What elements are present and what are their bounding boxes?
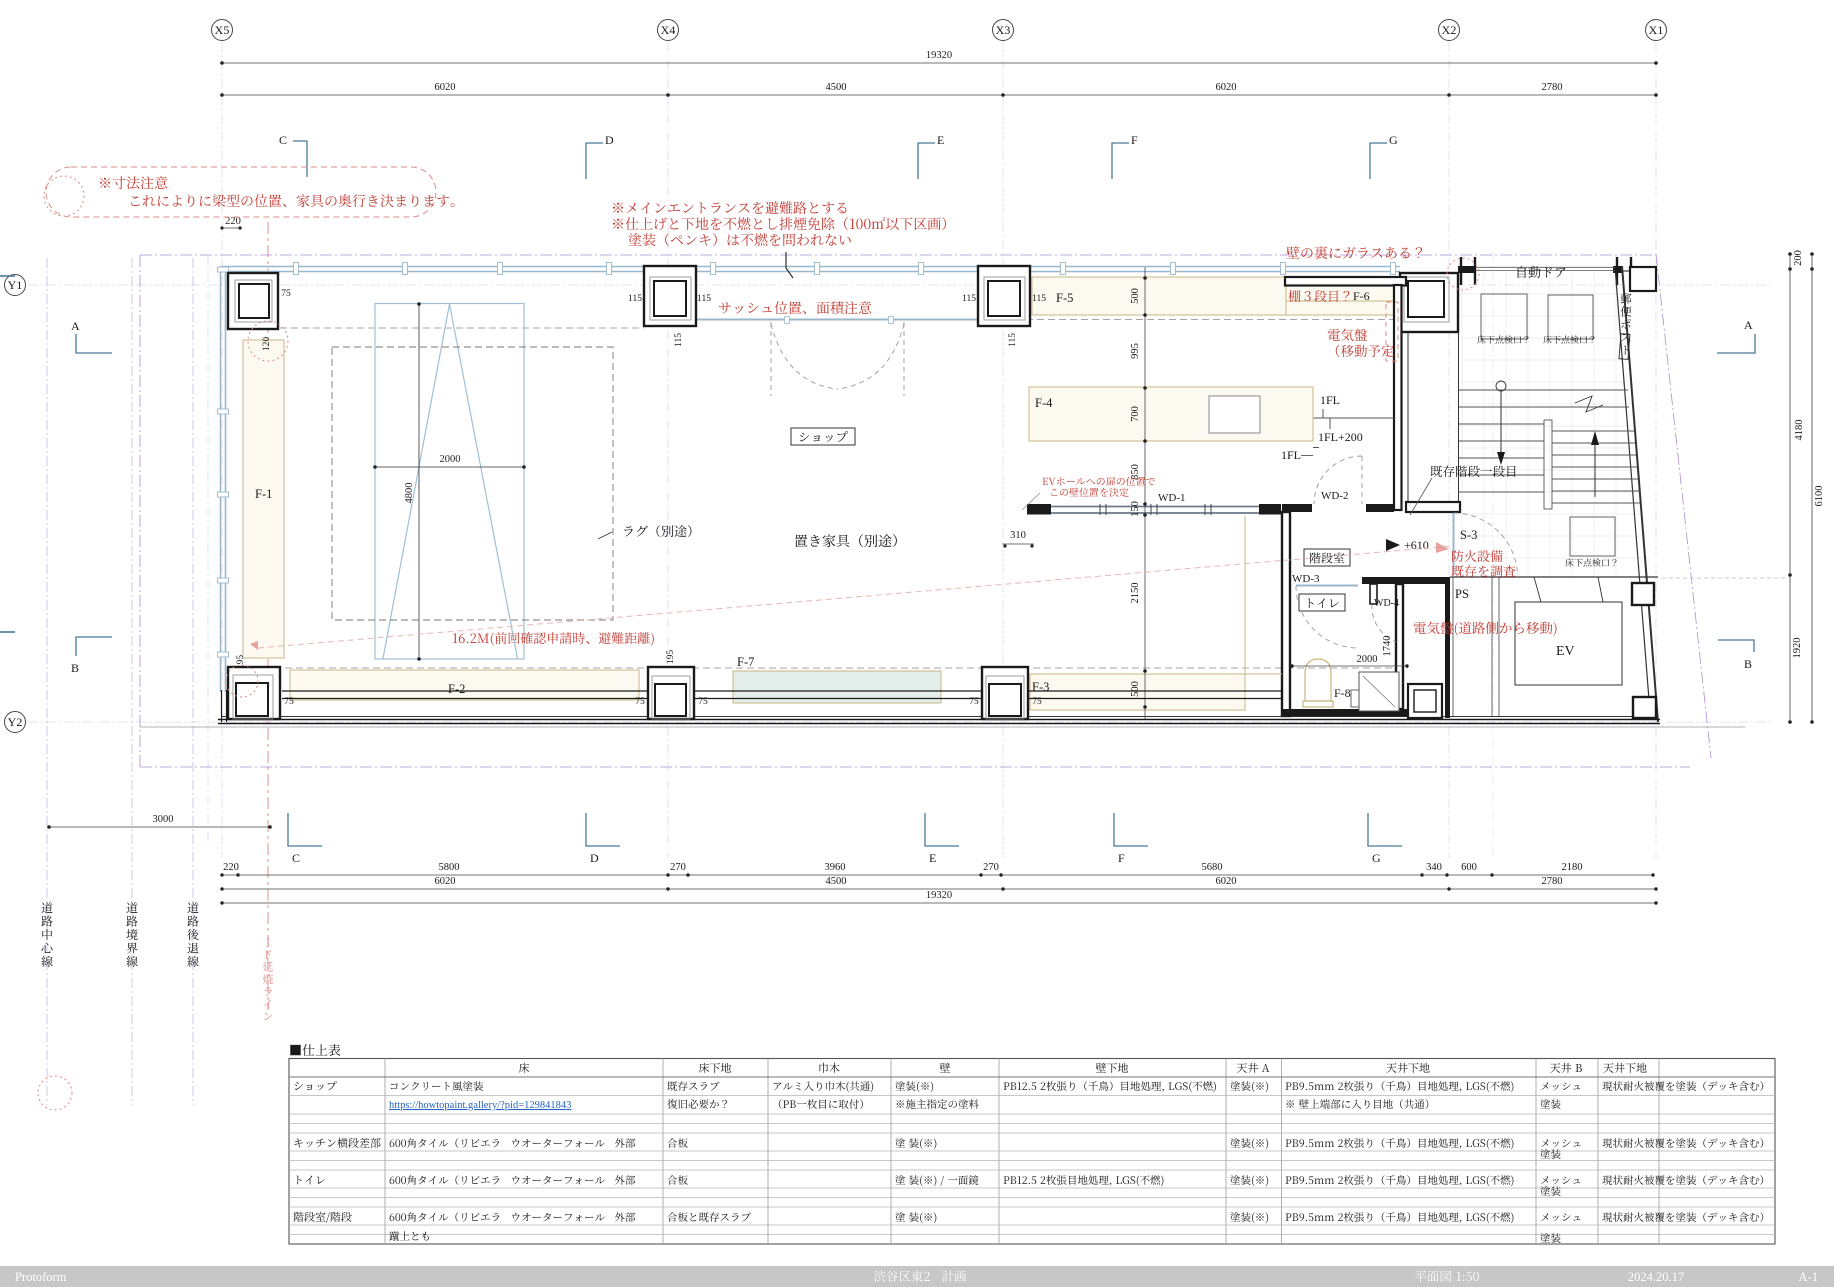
svg-text:75: 75 — [284, 697, 294, 707]
svg-text:WD-1: WD-1 — [1158, 492, 1186, 504]
svg-text:600: 600 — [1461, 862, 1477, 873]
svg-text:115: 115 — [1008, 333, 1018, 347]
svg-text:1FL+200: 1FL+200 — [1318, 430, 1363, 444]
svg-text:F-2: F-2 — [448, 682, 465, 696]
svg-text:270: 270 — [983, 862, 999, 873]
svg-text:2150: 2150 — [1130, 583, 1141, 604]
svg-text:1920: 1920 — [1792, 638, 1803, 659]
svg-text:4800: 4800 — [404, 483, 415, 504]
svg-text:G: G — [1372, 851, 1381, 865]
svg-text:EV: EV — [1556, 644, 1575, 659]
svg-text:115: 115 — [628, 294, 642, 304]
svg-text:F-1: F-1 — [255, 487, 272, 501]
svg-text:F-5: F-5 — [1056, 291, 1073, 305]
svg-text:6020: 6020 — [435, 82, 456, 93]
svg-text:115: 115 — [697, 294, 711, 304]
svg-text:A-1: A-1 — [1799, 1270, 1818, 1284]
svg-text:195: 195 — [236, 655, 246, 670]
svg-text:6100: 6100 — [1814, 486, 1825, 507]
svg-text:4500: 4500 — [826, 876, 847, 887]
svg-text:X3: X3 — [996, 23, 1011, 37]
svg-text:E: E — [937, 133, 944, 147]
svg-text:2180: 2180 — [1562, 862, 1583, 873]
svg-text:2780: 2780 — [1542, 876, 1563, 887]
svg-text:75: 75 — [969, 697, 979, 707]
svg-text:WD-3: WD-3 — [1292, 573, 1320, 585]
svg-text:WD-4: WD-4 — [1374, 598, 1399, 609]
svg-text:150: 150 — [1130, 501, 1141, 517]
svg-text:4500: 4500 — [826, 82, 847, 93]
svg-text:1FL: 1FL — [1281, 448, 1301, 462]
svg-text:E: E — [929, 851, 936, 865]
svg-text:4180: 4180 — [1794, 420, 1805, 441]
svg-text:2000: 2000 — [1357, 654, 1378, 665]
svg-text:G: G — [1389, 133, 1398, 147]
svg-text:5680: 5680 — [1202, 862, 1223, 873]
svg-text:5800: 5800 — [439, 862, 460, 873]
svg-text:75: 75 — [635, 697, 645, 707]
svg-text:310: 310 — [1010, 530, 1026, 541]
svg-text:500: 500 — [1130, 681, 1141, 697]
svg-text:X2: X2 — [1442, 23, 1457, 37]
svg-text:115: 115 — [1032, 294, 1046, 304]
svg-text:F-3: F-3 — [1032, 680, 1049, 694]
svg-text:F: F — [1131, 133, 1138, 147]
svg-text:WD-2: WD-2 — [1321, 490, 1349, 502]
svg-text:Y1: Y1 — [8, 278, 23, 292]
svg-text:F-6: F-6 — [1353, 289, 1370, 303]
svg-text:D: D — [605, 133, 614, 147]
svg-text:220: 220 — [223, 862, 239, 873]
svg-text:19320: 19320 — [926, 890, 952, 901]
svg-text:X1: X1 — [1649, 23, 1664, 37]
svg-text:1740: 1740 — [1382, 636, 1393, 657]
svg-text:B: B — [1744, 657, 1752, 671]
svg-text:3000: 3000 — [153, 814, 174, 825]
svg-text:D: D — [590, 851, 599, 865]
svg-text:https://howtopaint.gallery/?pi: https://howtopaint.gallery/?pid=12984184… — [389, 1100, 571, 1111]
svg-text:200: 200 — [1793, 250, 1804, 266]
svg-text:340: 340 — [1426, 862, 1442, 873]
svg-text:995: 995 — [1130, 343, 1141, 359]
svg-text:19320: 19320 — [926, 50, 952, 61]
svg-text:270: 270 — [670, 862, 686, 873]
svg-text:C: C — [292, 851, 300, 865]
svg-text:3960: 3960 — [825, 862, 846, 873]
svg-text:Protoform: Protoform — [15, 1270, 67, 1284]
svg-text:500: 500 — [1130, 288, 1141, 304]
svg-text:S-3: S-3 — [1460, 528, 1477, 542]
svg-text:F: F — [1118, 851, 1125, 865]
svg-text:120: 120 — [262, 337, 272, 352]
svg-text:6020: 6020 — [1216, 876, 1237, 887]
svg-text:PS: PS — [1455, 587, 1469, 601]
svg-text:C: C — [279, 133, 287, 147]
svg-text:1FL: 1FL — [1320, 393, 1340, 407]
svg-text:6020: 6020 — [1216, 82, 1237, 93]
svg-text:220: 220 — [225, 216, 241, 227]
svg-text:195: 195 — [666, 650, 676, 665]
svg-text:2000: 2000 — [440, 454, 461, 465]
svg-text:F-4: F-4 — [1035, 396, 1053, 410]
svg-text:X4: X4 — [661, 23, 676, 37]
svg-text:A: A — [71, 319, 80, 333]
svg-text:2780: 2780 — [1542, 82, 1563, 93]
svg-text:75: 75 — [698, 697, 708, 707]
svg-text:2024.20.17: 2024.20.17 — [1628, 1270, 1684, 1284]
svg-text:75: 75 — [281, 289, 291, 299]
svg-text:B: B — [71, 661, 79, 675]
svg-text:115: 115 — [962, 294, 976, 304]
svg-text:F-7: F-7 — [737, 655, 754, 669]
svg-text:F-8: F-8 — [1334, 686, 1351, 700]
svg-text:115: 115 — [674, 333, 684, 347]
svg-text:6020: 6020 — [435, 876, 456, 887]
svg-text:A: A — [1744, 318, 1753, 332]
svg-text:700: 700 — [1130, 406, 1141, 422]
svg-text:75: 75 — [1032, 697, 1042, 707]
svg-text:Y2: Y2 — [8, 715, 23, 729]
svg-text:X5: X5 — [215, 23, 230, 37]
